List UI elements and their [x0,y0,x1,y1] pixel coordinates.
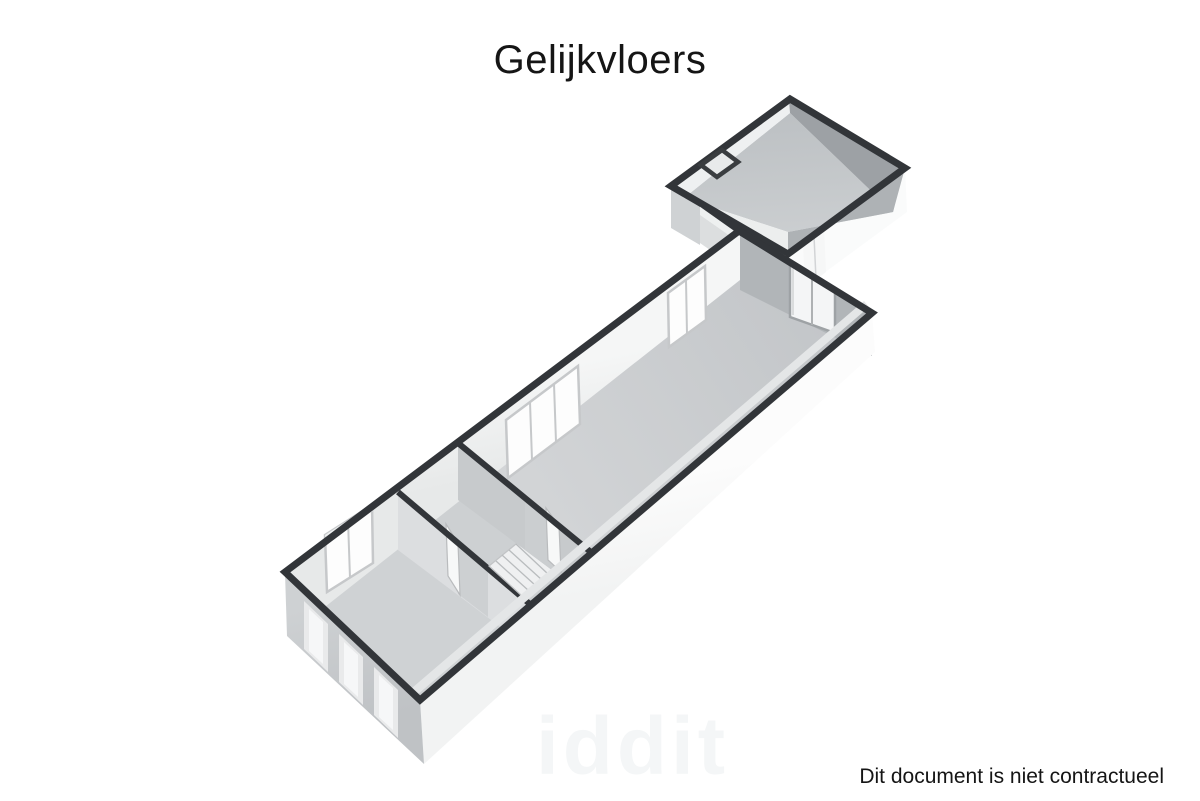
disclaimer-text: Dit document is niet contractueel [859,765,1164,789]
page-title: Gelijkvloers [0,38,1200,83]
main-building [285,231,875,764]
floorplan-canvas [0,0,1200,801]
